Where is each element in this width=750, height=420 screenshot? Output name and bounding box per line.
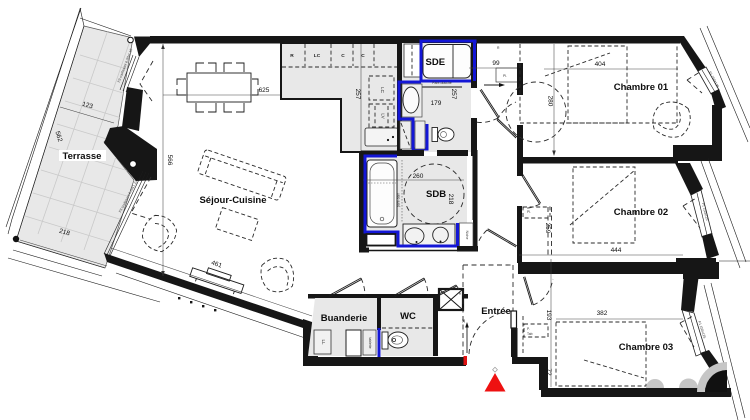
svg-text:179: 179: [431, 100, 442, 107]
svg-text:WC: WC: [400, 311, 416, 322]
svg-text:LL: LL: [321, 339, 326, 345]
svg-text:pare-bain: pare-bain: [397, 193, 401, 207]
svg-text:tablette: tablette: [368, 337, 372, 348]
svg-text:444: 444: [611, 247, 622, 254]
svg-text:Chambre 02: Chambre 02: [614, 207, 668, 218]
svg-text:257: 257: [450, 89, 457, 100]
svg-text:SDE: SDE: [426, 57, 446, 68]
svg-text:Pl.: Pl.: [527, 210, 531, 214]
svg-text:Séjour-Cuisine: Séjour-Cuisine: [199, 195, 266, 206]
svg-text:193: 193: [545, 310, 552, 321]
svg-text:Tab: Tab: [527, 332, 533, 336]
svg-text:Terrasse: Terrasse: [63, 151, 102, 162]
svg-text:260: 260: [413, 173, 424, 180]
svg-text:R: R: [290, 53, 294, 59]
svg-text:257: 257: [354, 89, 361, 100]
svg-text:C: C: [341, 53, 345, 59]
svg-text:99: 99: [492, 60, 500, 67]
svg-text:625: 625: [259, 87, 270, 94]
svg-text:Niche: Niche: [465, 231, 469, 240]
svg-text:Pare-douche: Pare-douche: [432, 81, 452, 85]
svg-text:Pl.: Pl.: [503, 74, 507, 78]
svg-text:280: 280: [547, 96, 554, 107]
svg-text:Buanderie: Buanderie: [321, 313, 367, 324]
svg-text:259: 259: [544, 223, 551, 234]
svg-text:P.: P.: [527, 327, 530, 331]
svg-text:LC: LC: [380, 87, 385, 94]
svg-text:218: 218: [447, 194, 454, 205]
svg-text:Chambre 01: Chambre 01: [614, 82, 669, 93]
svg-text:C: C: [361, 53, 365, 59]
svg-text:404: 404: [595, 61, 606, 68]
svg-text:566: 566: [166, 155, 173, 166]
svg-text:SDB: SDB: [426, 189, 446, 200]
svg-text:382: 382: [597, 310, 608, 317]
svg-text:LC: LC: [314, 53, 321, 59]
